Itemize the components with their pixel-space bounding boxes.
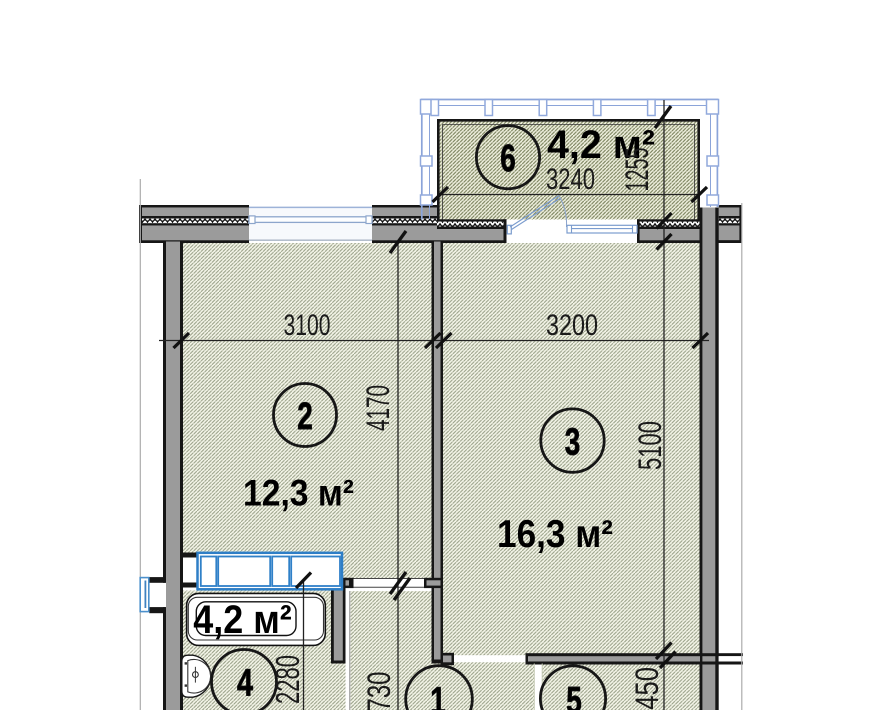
svg-text:5: 5 (566, 680, 582, 710)
svg-text:6: 6 (500, 138, 516, 180)
svg-text:5100: 5100 (632, 421, 668, 470)
svg-text:12,3 м²: 12,3 м² (243, 473, 354, 514)
svg-text:4: 4 (237, 663, 253, 705)
svg-text:3100: 3100 (284, 309, 331, 342)
svg-text:3: 3 (565, 422, 581, 464)
svg-text:2280: 2280 (269, 655, 306, 704)
svg-text:3200: 3200 (546, 309, 598, 342)
svg-text:1: 1 (430, 681, 446, 710)
svg-text:4,2 м²: 4,2 м² (193, 598, 292, 642)
svg-text:730: 730 (361, 672, 397, 710)
svg-text:1255: 1255 (619, 148, 655, 192)
svg-text:16,3 м²: 16,3 м² (497, 513, 613, 556)
svg-text:2: 2 (297, 396, 313, 438)
svg-text:4170: 4170 (360, 385, 396, 431)
svg-text:1450: 1450 (629, 667, 665, 710)
svg-text:3240: 3240 (546, 163, 595, 196)
